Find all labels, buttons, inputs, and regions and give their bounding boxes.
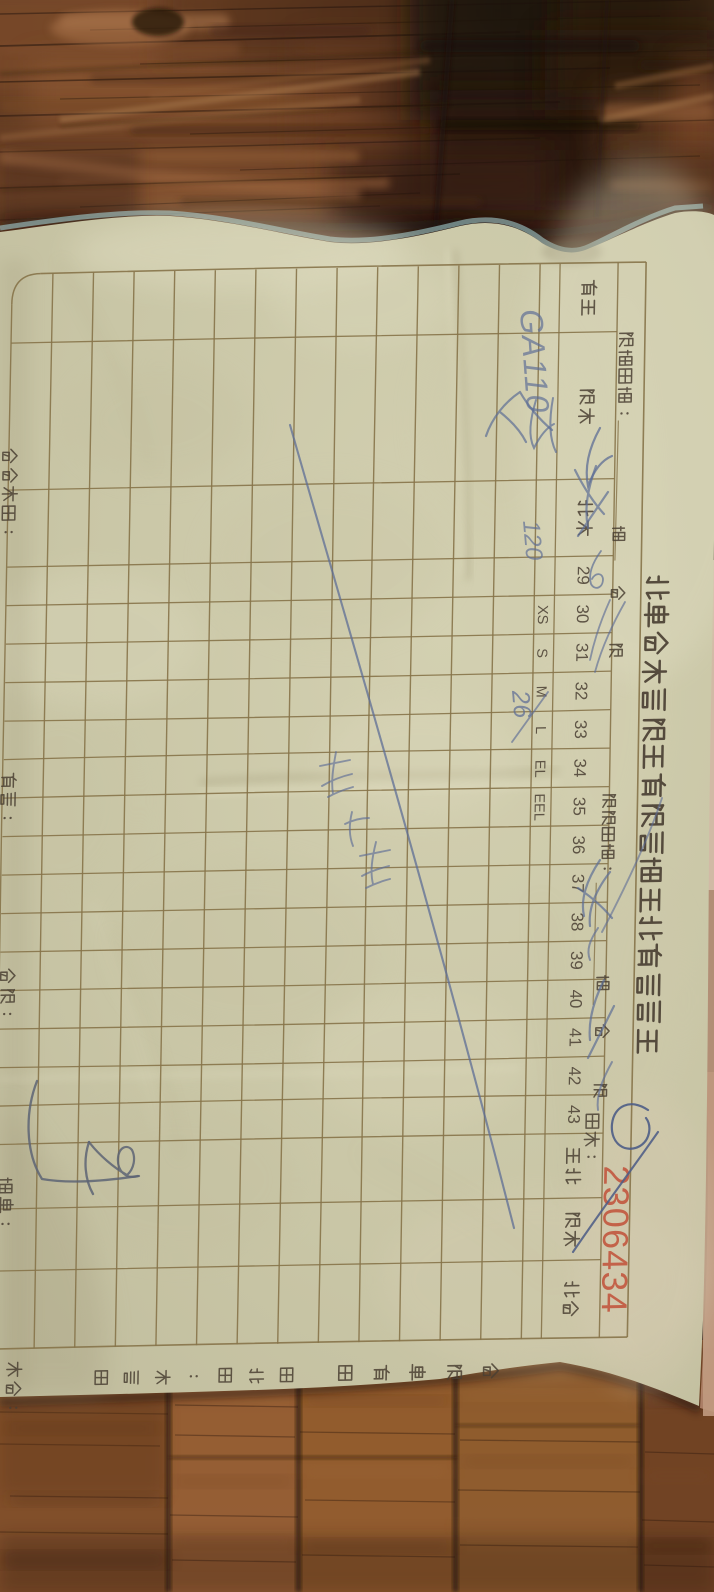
svg-text:L: L — [532, 726, 548, 734]
svg-text:32: 32 — [571, 681, 590, 700]
svg-text:36: 36 — [569, 835, 588, 854]
svg-text:39: 39 — [567, 951, 586, 970]
svg-text:33: 33 — [571, 720, 590, 739]
svg-text:40: 40 — [566, 989, 585, 1008]
svg-text:EL: EL — [531, 760, 547, 778]
svg-text:120: 120 — [517, 519, 547, 562]
svg-text:S: S — [533, 648, 549, 658]
svg-text:31: 31 — [572, 643, 591, 662]
svg-text:30: 30 — [573, 604, 592, 623]
svg-text:GA110: GA110 — [513, 308, 556, 415]
svg-text:34: 34 — [570, 758, 589, 777]
svg-text:EEL: EEL — [530, 793, 546, 821]
svg-text:41: 41 — [565, 1028, 584, 1047]
svg-text:XS: XS — [534, 605, 550, 625]
svg-text:2306434: 2306434 — [594, 1165, 638, 1314]
svg-text:43: 43 — [564, 1105, 583, 1124]
svg-text:42: 42 — [565, 1066, 584, 1085]
svg-text:35: 35 — [569, 797, 588, 816]
